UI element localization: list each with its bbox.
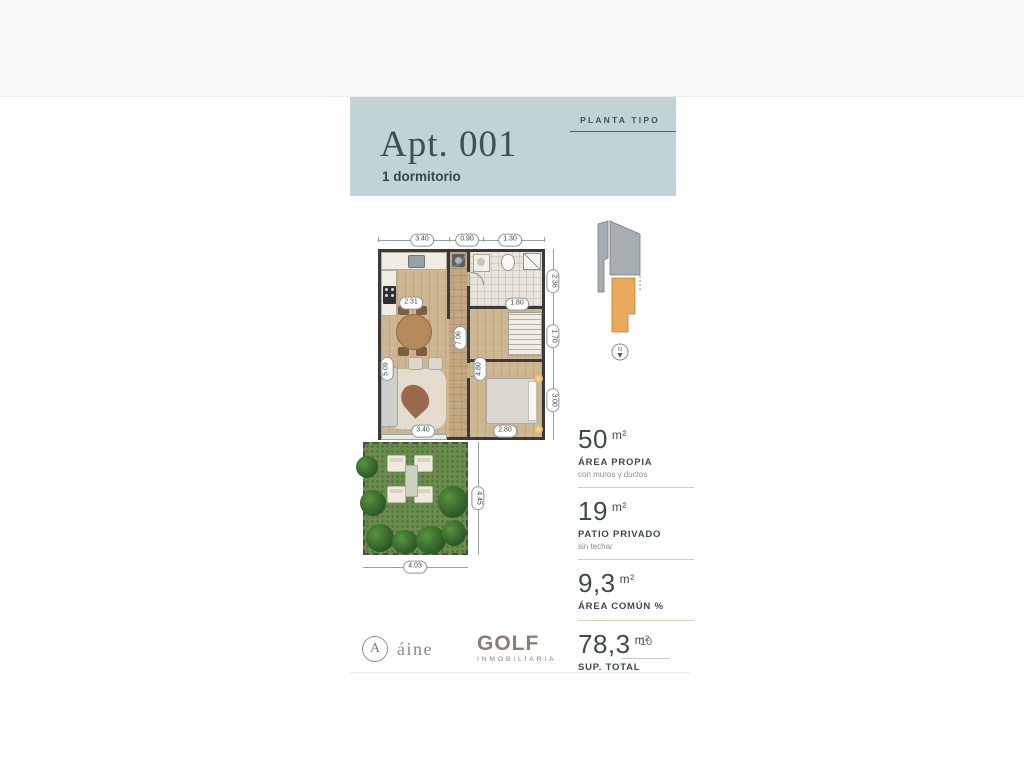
stat-label: ÁREA COMÚN % [578,601,694,612]
dim-label: 2.80 [493,425,517,438]
shower [523,253,541,270]
page-title: Apt. 001 [380,123,518,166]
brochure-page: Apt. 001 1 dormitorio PLANTA TIPO [0,0,1024,768]
stat-unit: m² [612,428,627,442]
footer-divider [350,672,690,673]
toilet [501,254,515,271]
top-margin-strip [0,0,1024,97]
plant [360,490,386,516]
plant [356,456,378,478]
stat-area-propia: 50m² ÁREA PROPIA con muros y ductos [578,424,694,479]
page-number-underline [622,658,670,659]
aine-brand-name: áine [397,639,433,660]
dim-label: 2.36 [547,269,560,293]
bed-pillows [528,381,537,421]
north-arrow-icon [618,353,623,358]
dim-label: 1.30 [498,234,522,247]
dim-label: 1.80 [505,298,529,311]
golf-brand-subtitle: INMOBILIARIA [477,656,556,663]
dim-label: 4.03 [403,561,427,574]
dim-label: 3.40 [410,234,434,247]
stat-unit: m² [612,500,627,514]
wardrobe [508,312,542,356]
plant [438,486,468,518]
keyplan-unit-highlight [612,278,635,332]
page-subtitle: 1 dormitorio [382,169,461,184]
floor-plan: 3.40 0.90 1.30 2.31 1.80 2.36 1.70 3.00 … [350,228,595,588]
golf-logo: GOLF INMOBILIARIA [477,633,556,663]
lounge-chair [387,486,406,503]
stat-value: 50m² [578,424,694,455]
wall [467,249,470,272]
stat-divider [578,559,694,560]
dim-label: 7.06 [454,326,467,350]
kitchen-sink [408,255,425,268]
stat-unit: m² [620,572,635,586]
plant [392,530,418,554]
stat-value: 9,3m² [578,568,694,599]
golf-brand-name: GOLF [477,633,556,654]
armchair [428,357,443,370]
wall [467,286,470,363]
page-number: 10 [626,636,666,648]
stat-patio-privado: 19m² PATIO PRIVADO sin techar [578,496,694,551]
dim-label: 3.00 [547,388,560,412]
dim-label: 4.45 [472,486,485,510]
building-keyplan: N [588,218,652,368]
dim-label: 0.90 [455,234,479,247]
plant [366,524,394,552]
plant [442,520,466,546]
nightstand-lamp [534,425,543,434]
patio-table [405,465,418,497]
compass-north-label: N [618,347,622,353]
dim-label: 5.09 [381,357,394,381]
stat-label: ÁREA PROPIA [578,457,694,468]
stat-value: 19m² [578,496,694,527]
keyplan-graphic: N [588,218,652,368]
armchair [408,357,423,370]
stat-label: PATIO PRIVADO [578,529,694,540]
header-card: Apt. 001 1 dormitorio PLANTA TIPO [350,97,676,196]
stat-note: con muros y ductos [578,470,694,479]
dim-label: 3.40 [411,425,435,438]
dim-label: 2.31 [399,297,423,310]
dim-label: 1.70 [547,324,560,348]
stat-divider [578,487,694,488]
wall [467,378,470,439]
plan-type-underline [570,131,676,132]
keyplan-building-left [598,221,608,292]
keyplan-building-right [610,221,640,275]
bathroom-sink [473,254,490,272]
plan-type-tag: PLANTA TIPO [570,115,660,125]
wall [447,249,450,319]
stat-divider [578,620,694,621]
stove [383,286,396,304]
lounge-chair [387,455,406,472]
stat-area-comun: 9,3m² ÁREA COMÚN % [578,568,694,612]
dining-table [396,314,432,350]
dim-label: 4.80 [474,357,487,381]
aine-monogram-icon: A [362,636,388,662]
stat-note: sin techar [578,542,694,551]
aine-logo: A áine [362,636,433,662]
nightstand-lamp [534,374,543,383]
